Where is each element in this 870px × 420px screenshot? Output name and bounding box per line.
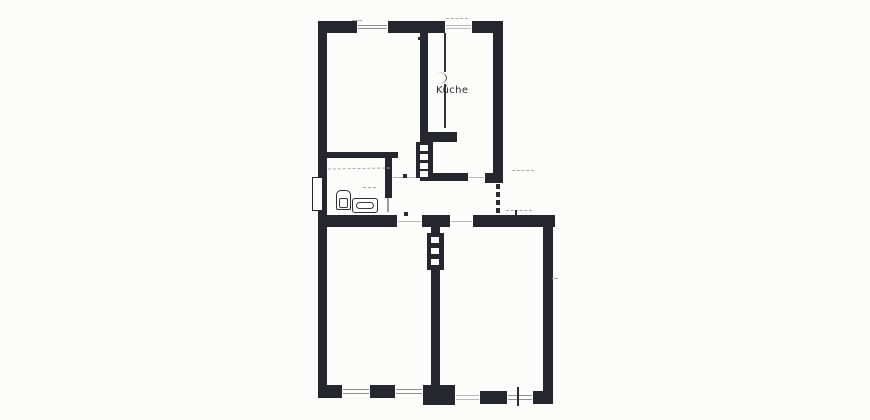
annotation-mark — [506, 210, 532, 214]
wall-segment — [420, 132, 457, 142]
wall-segment — [543, 227, 553, 404]
wall-segment — [385, 158, 392, 198]
wall-segment — [422, 215, 450, 227]
wall-segment — [370, 385, 395, 398]
wall-segment — [318, 385, 342, 398]
wall-segment — [388, 21, 445, 33]
partition-wall — [444, 33, 446, 72]
annotation-mark — [437, 72, 447, 84]
wall-segment — [493, 21, 503, 181]
annotation-mark — [552, 278, 558, 281]
room-lower-left — [327, 227, 431, 385]
chimney-flue — [431, 248, 439, 254]
annotation-mark — [418, 37, 421, 40]
window — [395, 386, 423, 397]
entrance-door-dash — [496, 184, 500, 189]
chimney-flue — [420, 163, 428, 169]
bathtub-fixture — [352, 198, 378, 213]
chimney-flue — [420, 145, 428, 151]
door-opening — [397, 216, 422, 226]
chimney-flue — [420, 154, 428, 160]
wall-segment — [485, 173, 503, 183]
bathroom-window — [312, 177, 323, 211]
room-kitchen — [447, 33, 493, 173]
window — [445, 22, 472, 32]
annotation-mark — [403, 174, 407, 178]
toilet-fixture — [336, 190, 351, 210]
annotation-mark — [352, 20, 362, 24]
partition-wall — [444, 84, 446, 128]
annotation-mark — [512, 170, 534, 175]
window — [507, 392, 533, 403]
wall-segment — [318, 215, 397, 227]
floor-plan: Küche — [0, 0, 870, 420]
annotation-mark — [517, 387, 519, 406]
annotation-mark — [404, 212, 408, 216]
chimney-flue — [431, 259, 439, 265]
door-opening — [450, 216, 473, 226]
annotation-mark — [515, 210, 517, 216]
annotation-mark — [328, 167, 390, 175]
wall-segment — [480, 391, 507, 404]
wall-segment — [533, 391, 553, 404]
room-lower-right — [440, 227, 543, 391]
wall-segment — [473, 215, 555, 227]
annotation-mark — [387, 198, 389, 212]
entrance-door-dash — [496, 200, 500, 205]
hallway — [392, 183, 493, 215]
floor-plan-page: Küche — [0, 0, 870, 420]
entrance-door-dash — [496, 192, 500, 197]
annotation-mark — [446, 18, 468, 22]
annotation-mark — [363, 187, 376, 192]
door-opening — [468, 174, 485, 180]
chimney-flue — [420, 171, 428, 177]
wall-segment — [420, 33, 428, 142]
wall-segment — [423, 385, 455, 405]
chimney-flue — [431, 237, 439, 243]
entrance-door-dash — [496, 208, 500, 213]
window — [455, 392, 480, 403]
window — [342, 386, 370, 397]
